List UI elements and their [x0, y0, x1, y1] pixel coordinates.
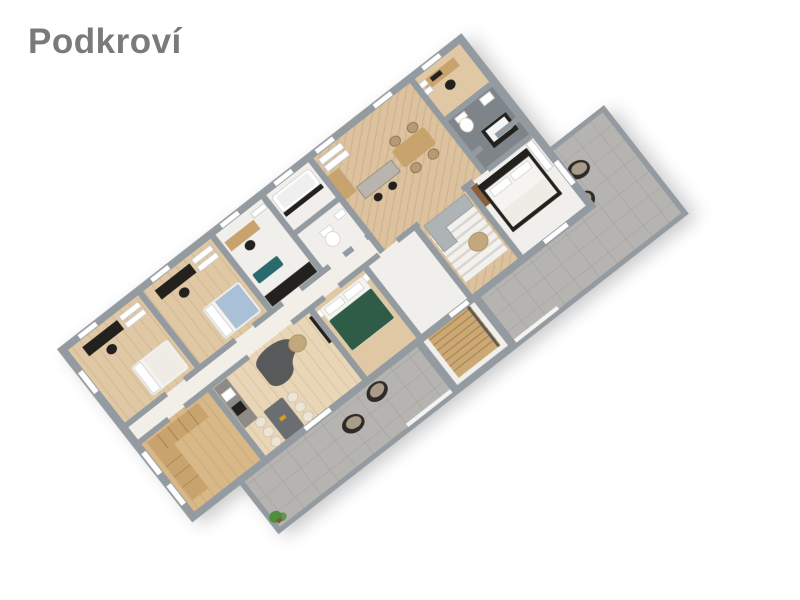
floorplan — [57, 0, 686, 571]
floorplan-page: Podkroví — [0, 0, 800, 600]
floorplan-image — [0, 0, 800, 600]
